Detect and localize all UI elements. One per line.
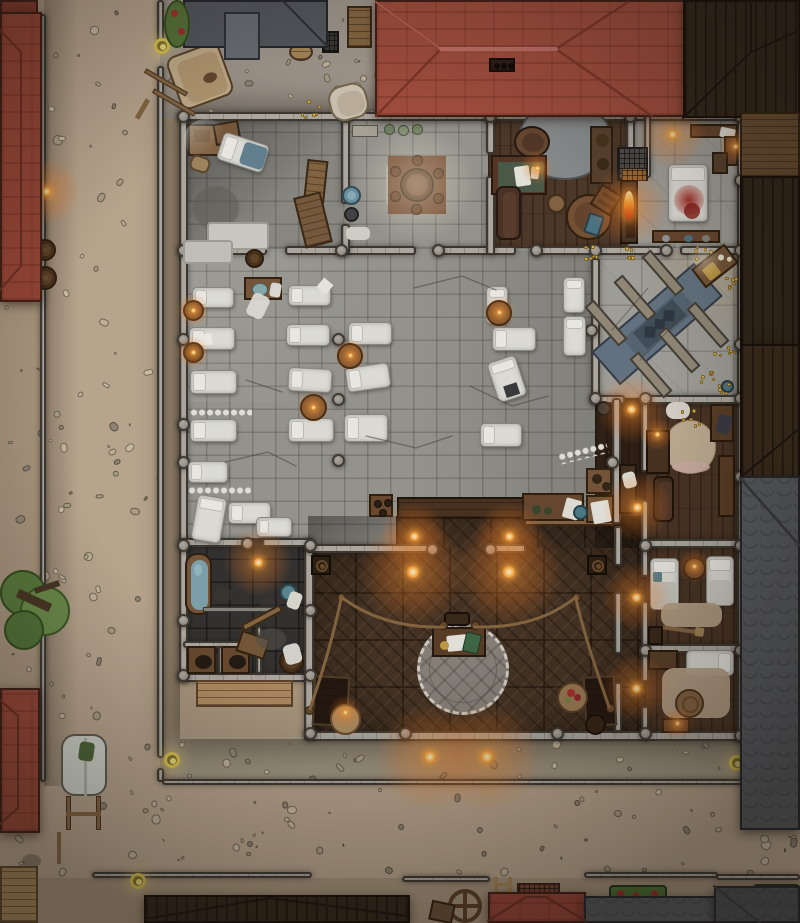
battle-map bbox=[0, 0, 800, 923]
fx-layer bbox=[0, 0, 800, 923]
warm-tint bbox=[0, 0, 800, 923]
